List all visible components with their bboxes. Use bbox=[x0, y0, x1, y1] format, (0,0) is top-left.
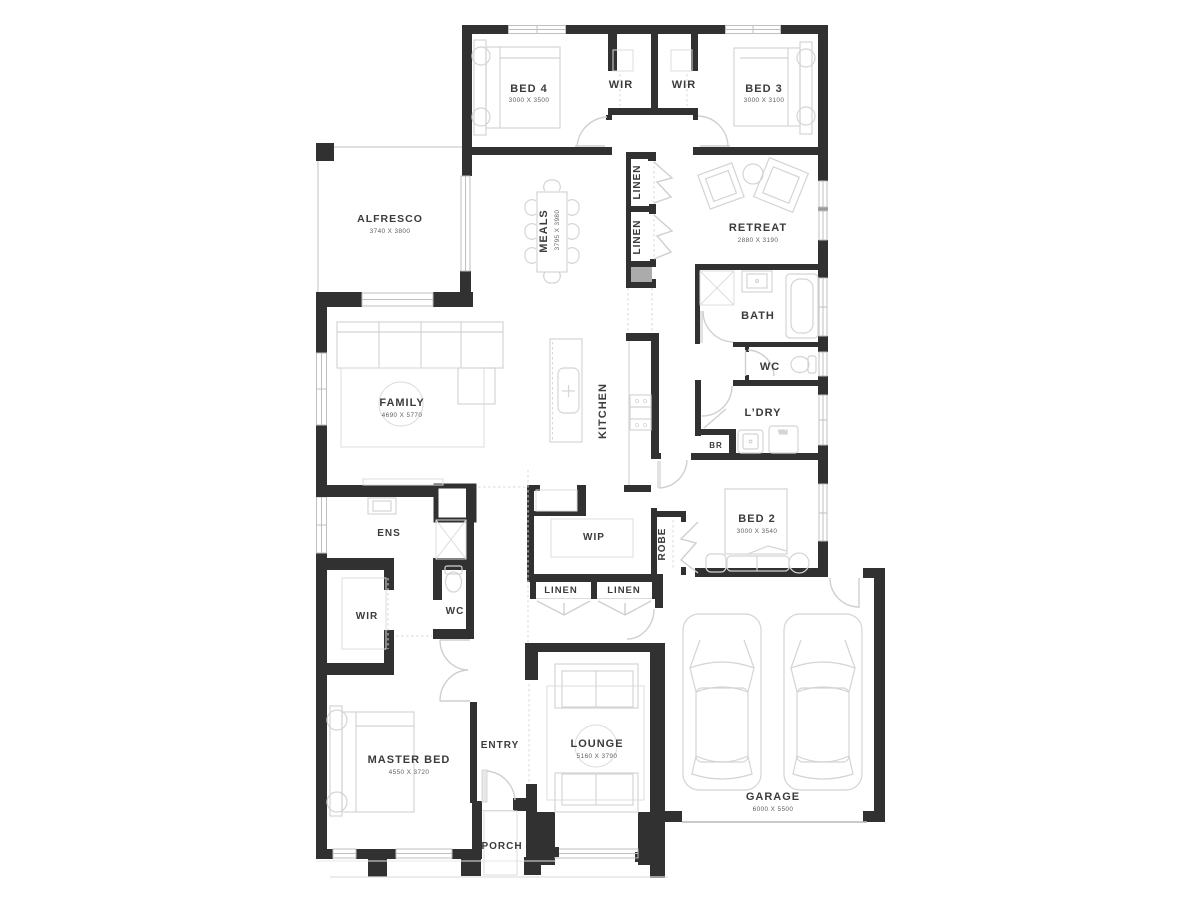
svg-text:LINEN: LINEN bbox=[632, 220, 643, 255]
svg-text:RETREAT: RETREAT bbox=[729, 222, 787, 234]
svg-text:KITCHEN: KITCHEN bbox=[597, 383, 609, 439]
svg-text:L’DRY: L’DRY bbox=[745, 407, 782, 419]
svg-text:6000 X 5500: 6000 X 5500 bbox=[753, 806, 794, 813]
svg-text:WIR: WIR bbox=[609, 79, 633, 91]
svg-text:WIR: WIR bbox=[672, 79, 696, 91]
svg-text:3740 X 3800: 3740 X 3800 bbox=[370, 228, 411, 235]
svg-text:MASTER BED: MASTER BED bbox=[368, 754, 451, 766]
svg-text:ROBE: ROBE bbox=[657, 528, 668, 561]
svg-text:4690 X 5770: 4690 X 5770 bbox=[382, 412, 423, 419]
svg-text:LINEN: LINEN bbox=[544, 585, 578, 596]
svg-text:ENS: ENS bbox=[377, 528, 401, 539]
svg-text:BED 4: BED 4 bbox=[510, 83, 547, 95]
svg-text:WIR: WIR bbox=[356, 611, 378, 622]
svg-text:WC: WC bbox=[760, 361, 780, 373]
svg-text:WC: WC bbox=[446, 606, 465, 617]
svg-text:BED 3: BED 3 bbox=[745, 83, 782, 95]
svg-text:FAMILY: FAMILY bbox=[379, 397, 424, 409]
svg-text:LOUNGE: LOUNGE bbox=[570, 738, 623, 750]
svg-text:PORCH: PORCH bbox=[481, 841, 522, 852]
svg-text:5160 X 3790: 5160 X 3790 bbox=[577, 753, 618, 760]
svg-text:4550 X 3720: 4550 X 3720 bbox=[389, 769, 430, 776]
svg-text:3000 X 3100: 3000 X 3100 bbox=[744, 97, 785, 104]
svg-text:MEALS: MEALS bbox=[538, 209, 550, 253]
svg-text:3795 X 3980: 3795 X 3980 bbox=[554, 210, 561, 251]
svg-text:ENTRY: ENTRY bbox=[481, 740, 520, 751]
svg-text:WIP: WIP bbox=[583, 532, 605, 543]
svg-text:WM: WM bbox=[779, 430, 788, 436]
svg-text:ALFRESCO: ALFRESCO bbox=[357, 213, 423, 225]
svg-text:3000 X 3540: 3000 X 3540 bbox=[737, 528, 778, 535]
svg-text:BED 2: BED 2 bbox=[738, 513, 775, 525]
svg-text:2880 X 3190: 2880 X 3190 bbox=[738, 237, 779, 244]
svg-text:3000 X 3500: 3000 X 3500 bbox=[509, 97, 550, 104]
svg-text:GARAGE: GARAGE bbox=[746, 791, 800, 803]
svg-text:BR: BR bbox=[709, 441, 723, 450]
svg-text:BATH: BATH bbox=[741, 310, 775, 322]
svg-text:LINEN: LINEN bbox=[607, 585, 641, 596]
svg-text:LINEN: LINEN bbox=[632, 165, 643, 200]
